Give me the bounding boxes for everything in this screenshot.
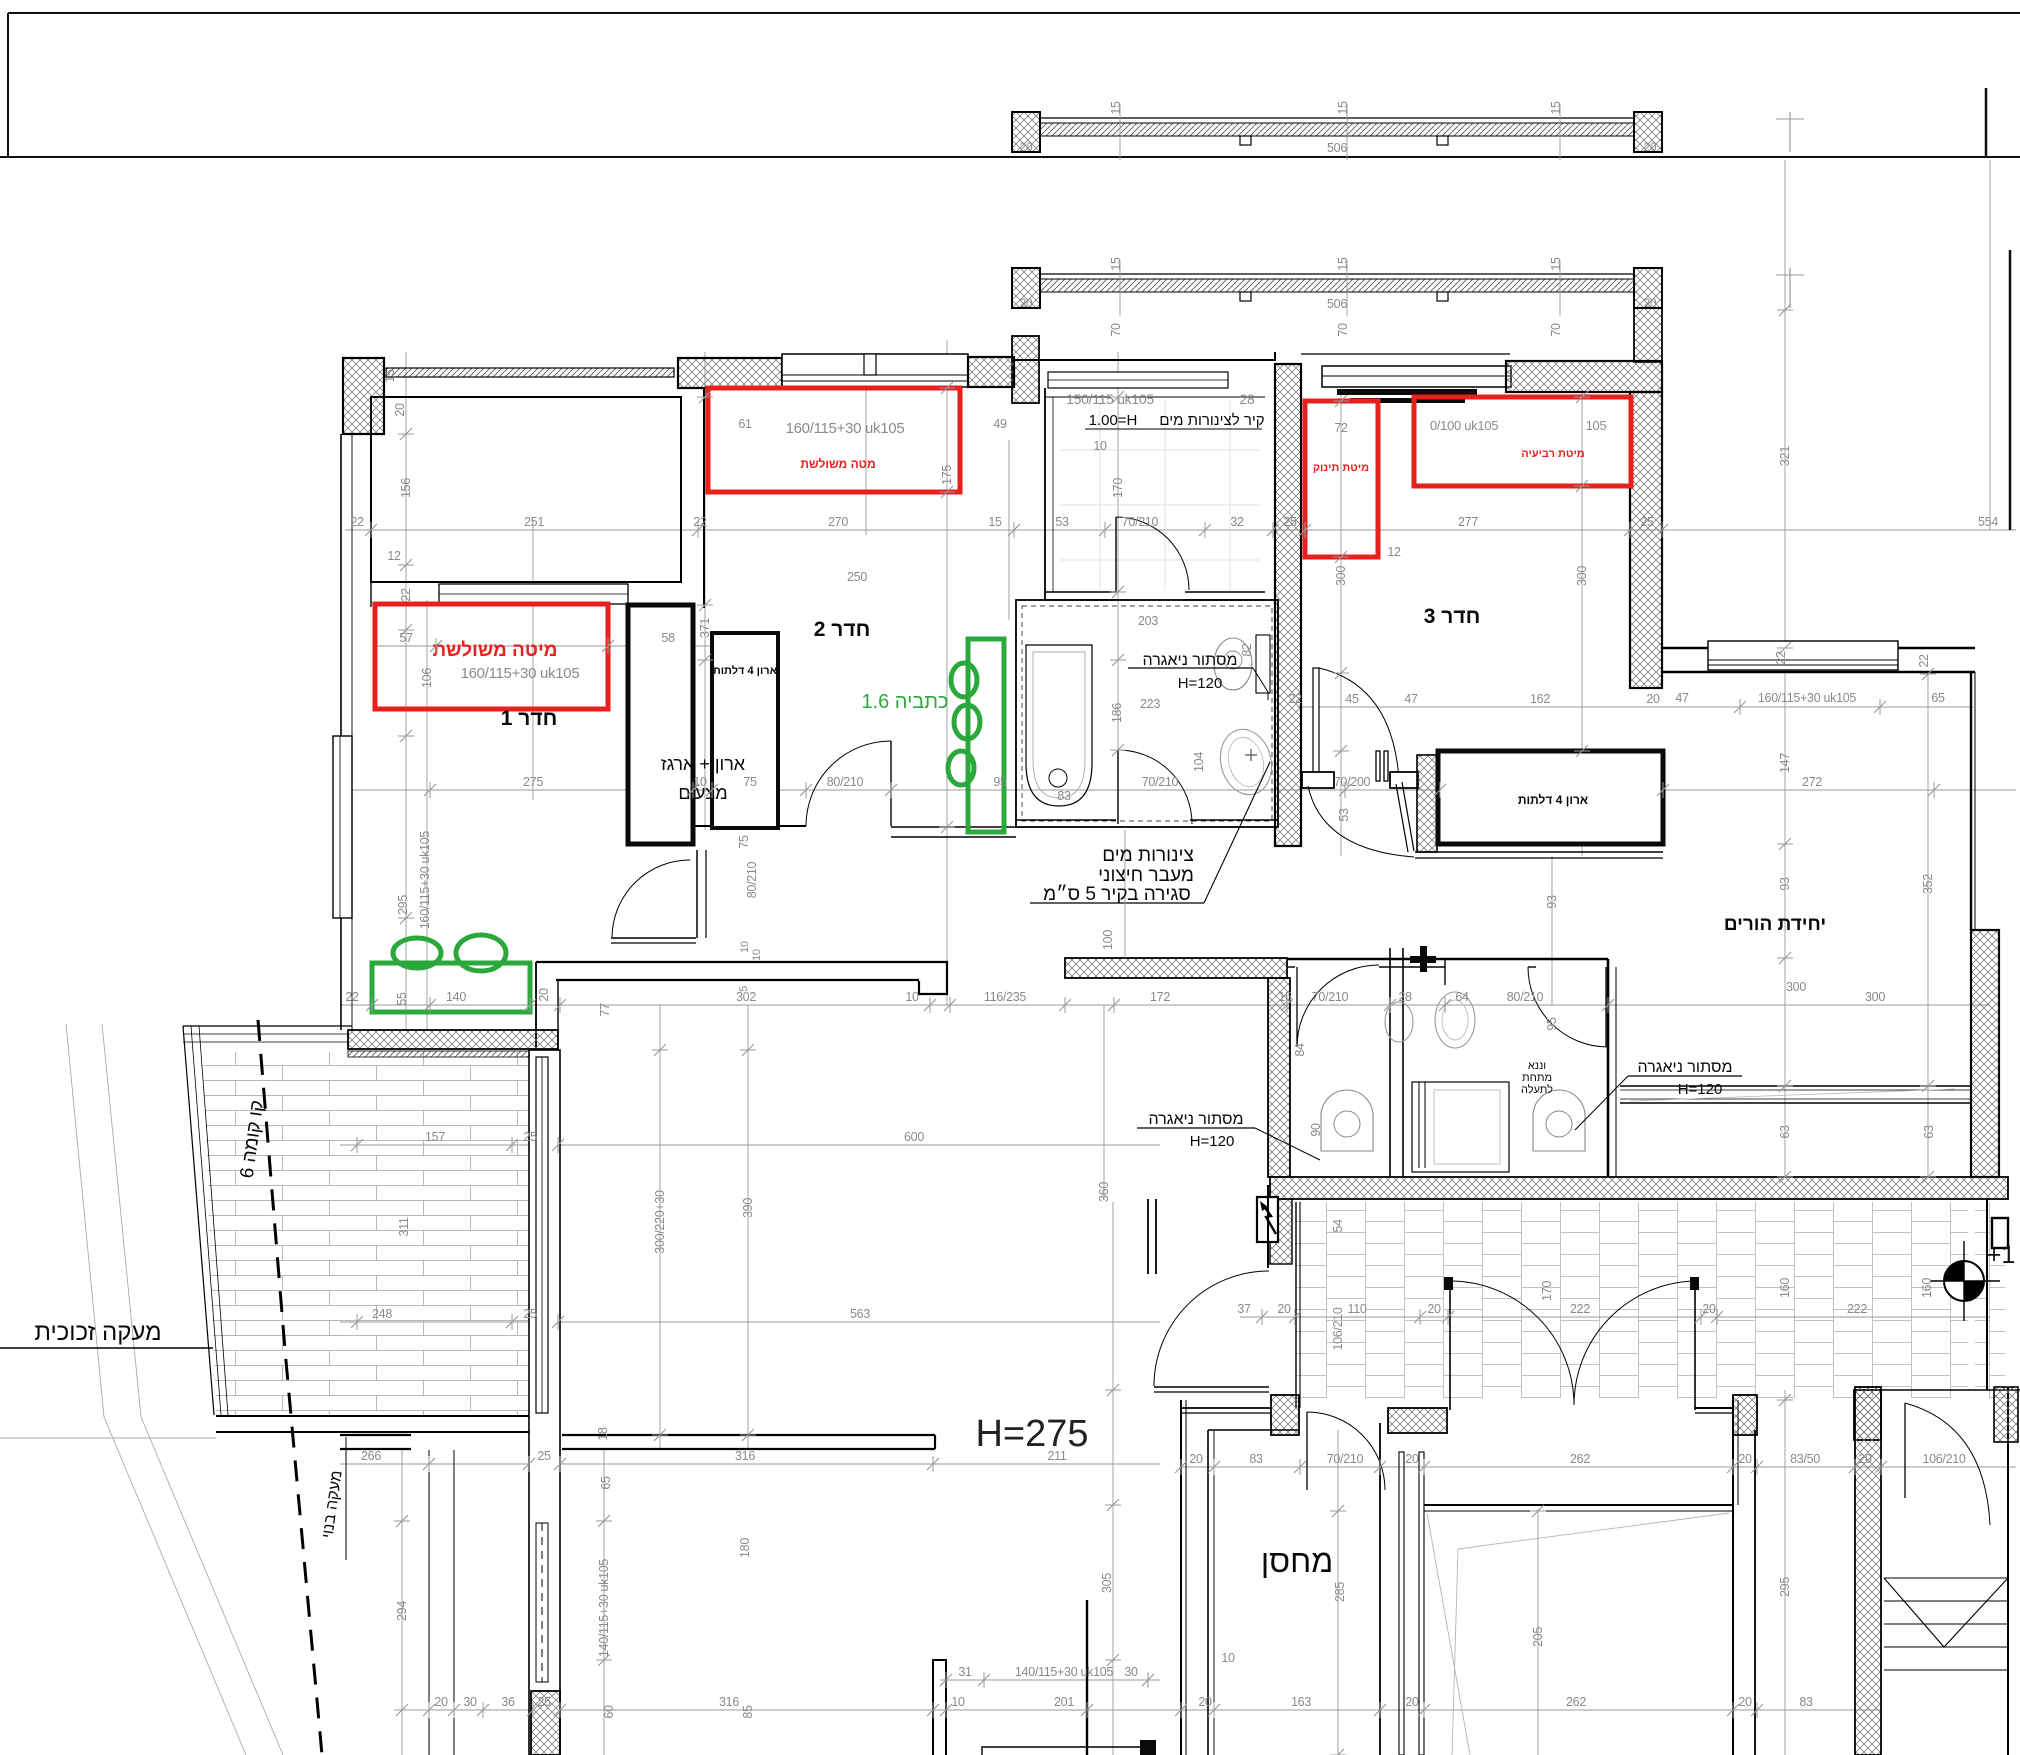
svg-text:סגירה בקיר 5 ס״מ: סגירה בקיר 5 ס״מ bbox=[1043, 884, 1191, 905]
svg-text:47: 47 bbox=[1404, 692, 1418, 706]
svg-text:554: 554 bbox=[1978, 515, 1998, 529]
svg-text:70: 70 bbox=[1549, 323, 1563, 337]
svg-text:70/210: 70/210 bbox=[1142, 775, 1179, 789]
svg-text:300: 300 bbox=[1334, 566, 1348, 586]
svg-text:20: 20 bbox=[434, 1695, 448, 1709]
svg-text:63: 63 bbox=[1922, 1125, 1936, 1139]
svg-text:0/100 uk105: 0/100 uk105 bbox=[1430, 418, 1498, 433]
svg-text:60: 60 bbox=[602, 1705, 616, 1719]
svg-text:172: 172 bbox=[1150, 990, 1170, 1004]
svg-text:32: 32 bbox=[1230, 515, 1244, 529]
svg-text:1.00=H: 1.00=H bbox=[1089, 412, 1138, 429]
svg-text:100: 100 bbox=[1101, 930, 1115, 950]
svg-text:251: 251 bbox=[524, 515, 544, 529]
svg-text:חדר 2: חדר 2 bbox=[814, 618, 871, 641]
svg-text:170: 170 bbox=[1111, 478, 1125, 498]
svg-text:H=275: H=275 bbox=[975, 1413, 1088, 1455]
svg-text:15: 15 bbox=[1109, 101, 1123, 115]
svg-text:28: 28 bbox=[1240, 391, 1255, 407]
svg-text:15: 15 bbox=[383, 369, 397, 383]
svg-text:20: 20 bbox=[1644, 140, 1657, 154]
svg-text:20: 20 bbox=[1405, 1452, 1419, 1466]
svg-text:47: 47 bbox=[1675, 691, 1689, 705]
svg-text:22: 22 bbox=[693, 515, 707, 529]
svg-text:147: 147 bbox=[1778, 753, 1792, 773]
svg-text:10: 10 bbox=[905, 990, 919, 1004]
svg-text:186: 186 bbox=[1110, 703, 1124, 723]
svg-text:140/115+30 uk105: 140/115+30 uk105 bbox=[1015, 1665, 1114, 1679]
svg-text:22: 22 bbox=[350, 515, 364, 529]
svg-text:162: 162 bbox=[1530, 692, 1550, 706]
svg-text:20: 20 bbox=[1198, 1695, 1212, 1709]
svg-text:175: 175 bbox=[940, 465, 954, 485]
svg-text:205: 205 bbox=[1531, 1627, 1545, 1647]
svg-text:203: 203 bbox=[1138, 614, 1158, 628]
svg-text:506: 506 bbox=[1327, 141, 1347, 155]
svg-text:72: 72 bbox=[1334, 421, 1348, 435]
svg-text:80/210: 80/210 bbox=[1507, 990, 1544, 1004]
svg-text:65: 65 bbox=[599, 1476, 613, 1490]
svg-text:95: 95 bbox=[993, 775, 1007, 789]
svg-text:160/115+30 uk105: 160/115+30 uk105 bbox=[461, 665, 580, 682]
svg-text:15: 15 bbox=[1109, 257, 1123, 271]
svg-text:70/210: 70/210 bbox=[1312, 990, 1349, 1004]
svg-text:20: 20 bbox=[1405, 1695, 1419, 1709]
svg-text:12: 12 bbox=[387, 549, 401, 563]
svg-text:מיטה משולשת: מיטה משולשת bbox=[433, 640, 558, 661]
svg-text:10: 10 bbox=[739, 941, 751, 953]
svg-text:20: 20 bbox=[1020, 296, 1033, 310]
svg-text:15: 15 bbox=[1549, 257, 1563, 271]
svg-text:104: 104 bbox=[1192, 752, 1206, 772]
svg-text:מיטת תינוק: מיטת תינוק bbox=[1313, 462, 1369, 474]
svg-text:20: 20 bbox=[1738, 1452, 1752, 1466]
svg-text:300: 300 bbox=[1865, 990, 1885, 1004]
svg-text:110: 110 bbox=[1347, 1302, 1366, 1316]
svg-text:55: 55 bbox=[395, 992, 409, 1006]
svg-text:316: 316 bbox=[719, 1695, 739, 1709]
svg-text:352: 352 bbox=[1921, 874, 1935, 894]
svg-text:מסתור ניאגרה: מסתור ניאגרה bbox=[1149, 1111, 1244, 1128]
svg-text:160: 160 bbox=[1920, 1278, 1934, 1298]
svg-text:49: 49 bbox=[993, 417, 1007, 431]
svg-text:160/115+30 uk105: 160/115+30 uk105 bbox=[1758, 691, 1857, 705]
svg-text:93: 93 bbox=[1778, 877, 1792, 891]
svg-text:163: 163 bbox=[1291, 1695, 1311, 1709]
svg-text:83: 83 bbox=[1057, 789, 1071, 803]
svg-text:82: 82 bbox=[1240, 643, 1254, 657]
svg-text:31: 31 bbox=[958, 1665, 972, 1679]
svg-text:5: 5 bbox=[738, 986, 750, 992]
svg-text:20: 20 bbox=[1277, 1302, 1291, 1316]
svg-text:390: 390 bbox=[741, 1198, 755, 1218]
svg-text:70/210: 70/210 bbox=[1122, 515, 1159, 529]
svg-text:30: 30 bbox=[1124, 1665, 1138, 1679]
svg-text:לתעלה: לתעלה bbox=[1521, 1083, 1553, 1096]
svg-text:305: 305 bbox=[1100, 1573, 1114, 1593]
svg-text:61: 61 bbox=[738, 417, 752, 431]
svg-text:18: 18 bbox=[596, 1427, 610, 1441]
svg-text:20: 20 bbox=[537, 988, 551, 1002]
svg-text:54: 54 bbox=[1331, 1219, 1345, 1233]
svg-text:275: 275 bbox=[523, 775, 543, 789]
svg-text:84: 84 bbox=[1293, 1043, 1307, 1057]
svg-text:15: 15 bbox=[1336, 101, 1350, 115]
svg-text:חדר 1: חדר 1 bbox=[501, 707, 558, 730]
svg-text:45: 45 bbox=[1345, 692, 1359, 706]
svg-text:25: 25 bbox=[523, 1130, 537, 1144]
svg-text:מעבר חיצוני: מעבר חיצוני bbox=[1098, 865, 1194, 886]
svg-text:15: 15 bbox=[1549, 101, 1563, 115]
svg-text:248: 248 bbox=[372, 1307, 392, 1321]
svg-text:150/115 uk105: 150/115 uk105 bbox=[1066, 391, 1154, 407]
svg-text:83: 83 bbox=[1799, 1695, 1813, 1709]
svg-text:262: 262 bbox=[1566, 1695, 1586, 1709]
svg-text:20: 20 bbox=[1738, 1695, 1752, 1709]
svg-text:160/115+30 uk105: 160/115+30 uk105 bbox=[418, 831, 432, 930]
svg-text:20: 20 bbox=[1189, 1452, 1203, 1466]
svg-text:156: 156 bbox=[399, 478, 413, 498]
svg-text:22: 22 bbox=[399, 588, 413, 602]
svg-text:25: 25 bbox=[537, 1449, 551, 1463]
svg-text:15: 15 bbox=[1336, 257, 1350, 271]
svg-text:10: 10 bbox=[951, 1695, 965, 1709]
svg-text:140/115+30 uk105: 140/115+30 uk105 bbox=[597, 1559, 611, 1658]
svg-text:מתחת: מתחת bbox=[1522, 1072, 1552, 1084]
svg-text:105: 105 bbox=[1586, 418, 1607, 433]
svg-text:321: 321 bbox=[1778, 446, 1792, 466]
svg-text:140: 140 bbox=[446, 990, 466, 1004]
svg-text:22: 22 bbox=[1288, 692, 1302, 706]
svg-text:85: 85 bbox=[741, 1705, 755, 1719]
svg-text:201: 201 bbox=[1054, 1695, 1074, 1709]
svg-text:36: 36 bbox=[501, 1695, 515, 1709]
svg-text:64: 64 bbox=[1455, 990, 1469, 1004]
svg-text:20: 20 bbox=[1646, 692, 1660, 706]
svg-text:20: 20 bbox=[393, 403, 407, 417]
svg-text:285: 285 bbox=[1333, 1582, 1347, 1602]
svg-text:10: 10 bbox=[1221, 1651, 1235, 1665]
svg-text:294: 294 bbox=[395, 1601, 409, 1621]
svg-text:93: 93 bbox=[1545, 895, 1559, 909]
svg-text:83/50: 83/50 bbox=[1790, 1452, 1820, 1466]
svg-text:295: 295 bbox=[396, 895, 410, 915]
svg-text:506: 506 bbox=[1327, 297, 1347, 311]
svg-text:106/210: 106/210 bbox=[1922, 1452, 1965, 1466]
svg-text:311: 311 bbox=[397, 1217, 411, 1236]
svg-text:+1: +1 bbox=[1987, 1241, 2016, 1269]
svg-text:600: 600 bbox=[904, 1130, 924, 1144]
svg-text:70: 70 bbox=[1109, 323, 1123, 337]
svg-text:300/220+30: 300/220+30 bbox=[653, 1190, 667, 1254]
svg-text:75: 75 bbox=[737, 835, 751, 849]
svg-text:22: 22 bbox=[1774, 651, 1788, 665]
svg-text:75: 75 bbox=[743, 775, 757, 789]
svg-text:90: 90 bbox=[1309, 1123, 1323, 1137]
svg-text:20: 20 bbox=[1644, 296, 1657, 310]
svg-text:223: 223 bbox=[1140, 697, 1160, 711]
svg-text:262: 262 bbox=[1570, 1452, 1590, 1466]
svg-text:250: 250 bbox=[847, 570, 867, 584]
svg-text:30: 30 bbox=[463, 1695, 477, 1709]
svg-text:80/210: 80/210 bbox=[745, 861, 759, 898]
svg-text:316: 316 bbox=[735, 1449, 755, 1463]
svg-text:300: 300 bbox=[1786, 980, 1806, 994]
svg-text:חדר 3: חדר 3 bbox=[1424, 605, 1481, 628]
svg-text:קיר לצינורות מים: קיר לצינורות מים bbox=[1159, 412, 1264, 429]
svg-text:222: 222 bbox=[1847, 1302, 1867, 1316]
svg-text:מסתור ניאגרה: מסתור ניאגרה bbox=[1143, 652, 1238, 669]
svg-text:כתביה 1.6: כתביה 1.6 bbox=[861, 691, 948, 713]
svg-text:170: 170 bbox=[1540, 1281, 1554, 1301]
svg-text:10: 10 bbox=[1093, 439, 1107, 453]
svg-text:25: 25 bbox=[537, 1695, 551, 1709]
svg-text:270: 270 bbox=[828, 515, 848, 529]
svg-text:53: 53 bbox=[1055, 515, 1069, 529]
svg-text:ארון 4 דלתות: ארון 4 דלתות bbox=[713, 664, 778, 677]
svg-text:יחידת הורים: יחידת הורים bbox=[1724, 914, 1826, 935]
svg-text:12: 12 bbox=[1387, 545, 1401, 559]
svg-text:מסתור ניאגרה: מסתור ניאגרה bbox=[1638, 1059, 1733, 1076]
svg-text:25: 25 bbox=[523, 1307, 537, 1321]
svg-text:מחסן: מחסן bbox=[1261, 1543, 1333, 1579]
svg-text:211: 211 bbox=[1047, 1449, 1066, 1463]
svg-text:53: 53 bbox=[1337, 808, 1351, 822]
svg-text:160: 160 bbox=[1778, 1278, 1792, 1298]
svg-text:37: 37 bbox=[1237, 1302, 1251, 1316]
svg-text:15: 15 bbox=[988, 515, 1002, 529]
svg-text:157: 157 bbox=[425, 1130, 445, 1144]
svg-text:371: 371 bbox=[698, 618, 712, 638]
svg-text:77: 77 bbox=[598, 1003, 612, 1017]
svg-text:106/210: 106/210 bbox=[1331, 1307, 1345, 1350]
svg-text:57: 57 bbox=[399, 631, 413, 645]
svg-text:63: 63 bbox=[1778, 1125, 1792, 1139]
svg-text:25: 25 bbox=[1283, 515, 1297, 529]
svg-text:H=120: H=120 bbox=[1678, 1081, 1723, 1098]
svg-text:70: 70 bbox=[1336, 323, 1350, 337]
svg-text:180: 180 bbox=[738, 1538, 752, 1558]
svg-text:563: 563 bbox=[850, 1307, 870, 1321]
svg-text:צינורות מים: צינורות מים bbox=[1102, 845, 1194, 866]
svg-text:ארון 4 דלתות: ארון 4 דלתות bbox=[1518, 793, 1588, 807]
svg-text:וננא: וננא bbox=[1528, 1060, 1546, 1072]
svg-text:277: 277 bbox=[1458, 515, 1478, 529]
svg-text:מעקה זכוכית: מעקה זכוכית bbox=[34, 1319, 161, 1346]
svg-text:266: 266 bbox=[361, 1449, 381, 1463]
svg-text:22: 22 bbox=[345, 990, 359, 1004]
svg-text:80/210: 80/210 bbox=[827, 775, 864, 789]
svg-text:65: 65 bbox=[1931, 691, 1945, 705]
svg-text:58: 58 bbox=[661, 631, 675, 645]
svg-text:106: 106 bbox=[420, 668, 434, 688]
svg-text:22: 22 bbox=[1917, 654, 1931, 668]
svg-text:20: 20 bbox=[1427, 1302, 1441, 1316]
svg-text:20: 20 bbox=[1858, 1452, 1872, 1466]
svg-text:70/200: 70/200 bbox=[1334, 775, 1371, 789]
svg-text:83: 83 bbox=[1249, 1452, 1263, 1466]
svg-text:10: 10 bbox=[751, 949, 763, 961]
svg-text:H=120: H=120 bbox=[1190, 1133, 1235, 1150]
svg-text:ארון + ארגז: ארון + ארגז bbox=[661, 754, 746, 774]
svg-text:25: 25 bbox=[1640, 515, 1654, 529]
svg-text:95: 95 bbox=[1545, 1017, 1559, 1031]
svg-text:222: 222 bbox=[1570, 1302, 1590, 1316]
svg-text:272: 272 bbox=[1802, 775, 1822, 789]
svg-text:116/235: 116/235 bbox=[984, 990, 1027, 1004]
svg-text:300: 300 bbox=[1575, 566, 1589, 586]
svg-text:20: 20 bbox=[1020, 140, 1033, 154]
svg-text:160/115+30 uk105: 160/115+30 uk105 bbox=[786, 420, 905, 437]
svg-text:מיטת רביעיה: מיטת רביעיה bbox=[1521, 448, 1585, 460]
svg-text:28: 28 bbox=[1398, 990, 1412, 1004]
svg-text:360: 360 bbox=[1097, 1182, 1111, 1202]
svg-text:H=120: H=120 bbox=[1178, 675, 1223, 692]
svg-text:70/210: 70/210 bbox=[1327, 1452, 1364, 1466]
svg-text:295: 295 bbox=[1778, 1577, 1792, 1597]
svg-text:מטה משולשת: מטה משולשת bbox=[800, 457, 875, 471]
